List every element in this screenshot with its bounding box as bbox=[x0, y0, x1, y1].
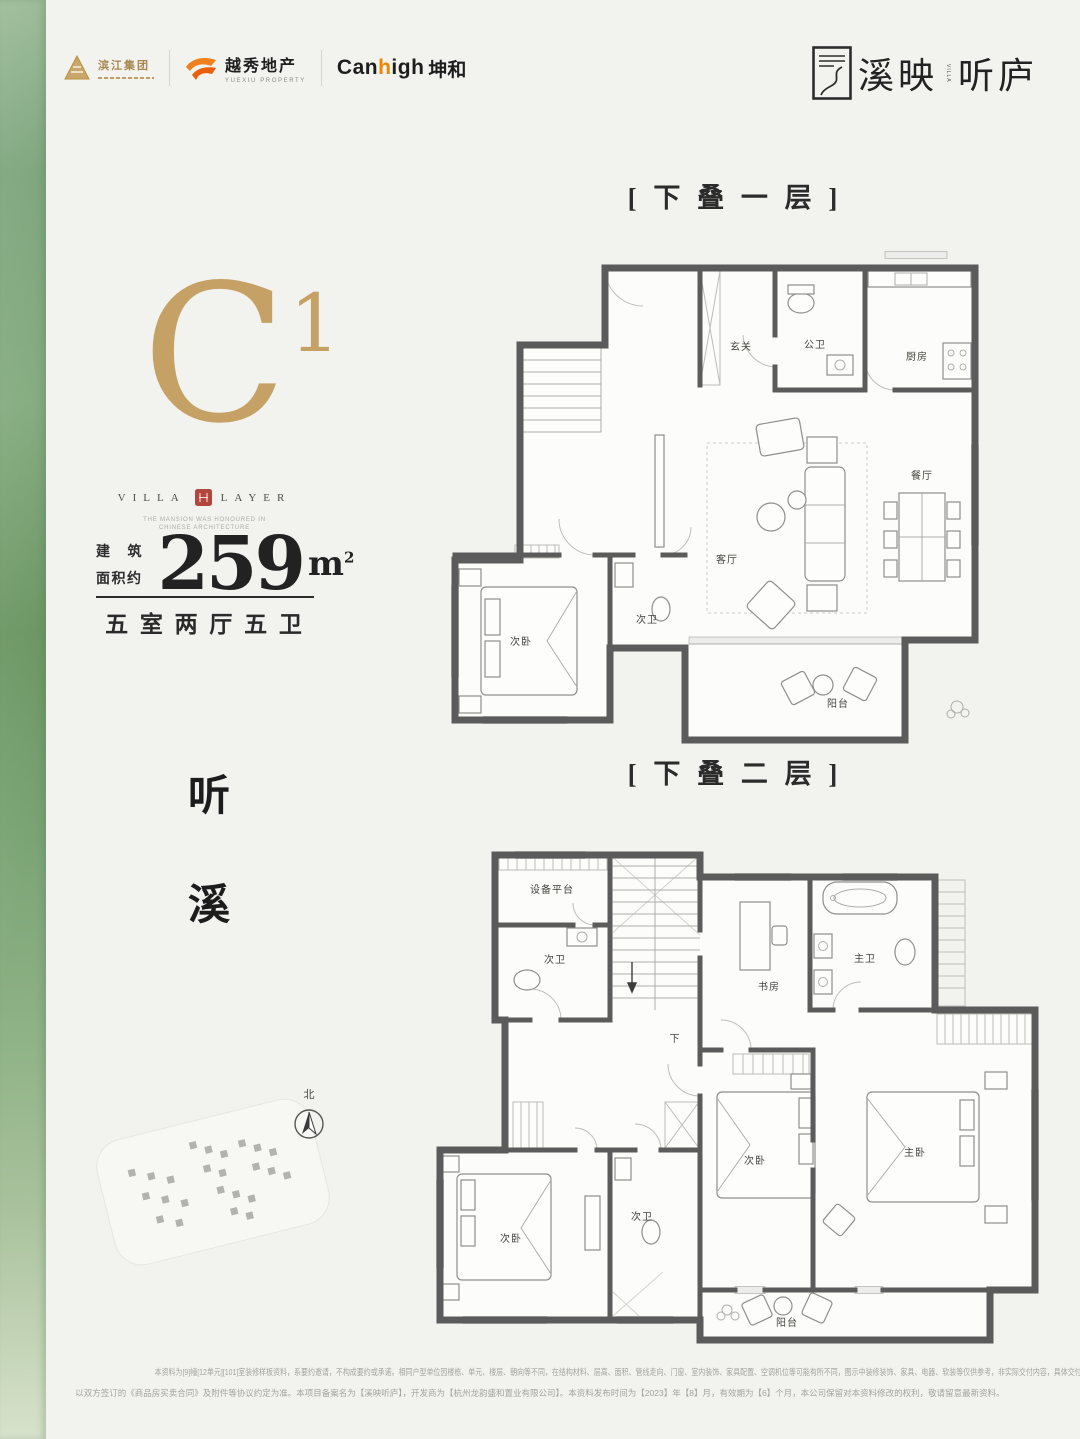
disclaimer-line-2: 以双方签订的《商品房买卖合同》及附件等协议约定为准。本项目备案名为【溪映听庐】，… bbox=[70, 1383, 1010, 1404]
area-underline bbox=[96, 596, 314, 598]
area-value: 259 bbox=[158, 533, 303, 596]
room-label-study: 书房 bbox=[758, 980, 780, 993]
room-label-bedroom-left: 次卧 bbox=[500, 1232, 522, 1245]
binjiang-name: 滨江集团 bbox=[98, 57, 154, 73]
floor-plan-1: 玄关 公卫 厨房 餐厅 客厅 次卧 次卫 阳台 bbox=[447, 247, 1023, 755]
logo-divider bbox=[169, 50, 170, 86]
layout-label: 五 室 两 厅 五 卫 bbox=[88, 605, 322, 639]
room-label-balcony: 阳台 bbox=[827, 697, 849, 710]
plan2-title: [ 下 叠 二 层 ] bbox=[427, 752, 1043, 791]
brand-stream-icon bbox=[812, 46, 852, 100]
compass: 北 bbox=[291, 1086, 327, 1147]
canhigh-cn: 坤和 bbox=[428, 55, 466, 82]
unit-code-sup: 1 bbox=[289, 284, 340, 364]
room-label-bath-top: 次卫 bbox=[544, 953, 566, 966]
poetic-text: 听 溪 bbox=[184, 762, 234, 932]
yuexiu-icon bbox=[185, 55, 219, 81]
area-label-1: 建 筑 bbox=[96, 541, 149, 561]
unit-code-letter: C bbox=[142, 268, 287, 443]
room-label-equip: 设备平台 bbox=[530, 883, 574, 896]
room-label-bedroom-mid: 次卧 bbox=[744, 1154, 766, 1167]
villa-layer-label: VILLA LAYER bbox=[92, 489, 317, 506]
room-label-living: 客厅 bbox=[716, 553, 738, 566]
room-label-master: 主卧 bbox=[904, 1146, 926, 1159]
logo-binjiang: 滨江集团 bbox=[62, 53, 154, 83]
disclaimer: 本资料为[9]幢[12单元][101]室装修样板资料，系要约邀请，不构成要约或承… bbox=[70, 1362, 1010, 1404]
area-label-2: 面积约 bbox=[96, 568, 149, 588]
brand-name-right: 听庐 bbox=[958, 47, 1038, 99]
room-label-entry: 玄关 bbox=[730, 340, 752, 353]
plan1-title: [ 下 叠 一 层 ] bbox=[447, 176, 1023, 215]
room-label-pub-bath: 公卫 bbox=[804, 340, 826, 351]
room-label-bath: 次卫 bbox=[636, 613, 658, 626]
unit-code: C 1 bbox=[142, 268, 340, 443]
room-label-kitchen: 厨房 bbox=[906, 350, 928, 363]
brand-mini-text: VILLA bbox=[945, 64, 951, 83]
stair-down-label: 下 bbox=[670, 1034, 681, 1045]
logo-yuexiu: 越秀地产 YUEXIU PROPERTY bbox=[185, 52, 306, 84]
yuexiu-name: 越秀地产 bbox=[225, 52, 306, 76]
room-label-bath-mid: 次卫 bbox=[631, 1210, 653, 1223]
canhigh-wordmark: Canhigh bbox=[337, 56, 425, 80]
room-label-master-bath: 主卫 bbox=[854, 953, 876, 965]
binjiang-caption-rule bbox=[98, 77, 154, 79]
brand-logo: 溪映 VILLA 听庐 bbox=[812, 46, 1038, 100]
seal-icon bbox=[195, 489, 212, 506]
floor-plan-2: 设备平台 次卫 书房 主卫 下 次卧 次卫 次卧 主卧 阳台 bbox=[427, 832, 1043, 1348]
compass-icon bbox=[291, 1104, 327, 1142]
north-label: 北 bbox=[291, 1086, 327, 1102]
area-block: 建 筑 面积约 259 m2 bbox=[96, 533, 354, 596]
header-logos: 滨江集团 越秀地产 YUEXIU PROPERTY Canhigh 坤和 bbox=[62, 50, 466, 86]
room-label-balcony-2: 阳台 bbox=[776, 1316, 798, 1329]
binjiang-pyramid-icon bbox=[62, 53, 92, 83]
disclaimer-line-1: 本资料为[9]幢[12单元][101]室装修样板资料，系要约邀请，不构成要约或承… bbox=[155, 1362, 926, 1383]
logo-divider bbox=[321, 50, 322, 86]
green-texture-strip bbox=[0, 0, 46, 1439]
area-unit: m2 bbox=[308, 544, 354, 584]
room-label-dining: 餐厅 bbox=[911, 469, 933, 482]
logo-canhigh: Canhigh 坤和 bbox=[337, 55, 467, 82]
brand-name-left: 溪映 bbox=[858, 47, 938, 99]
yuexiu-subtitle: YUEXIU PROPERTY bbox=[225, 78, 306, 84]
room-label-bedroom: 次卧 bbox=[510, 635, 532, 648]
